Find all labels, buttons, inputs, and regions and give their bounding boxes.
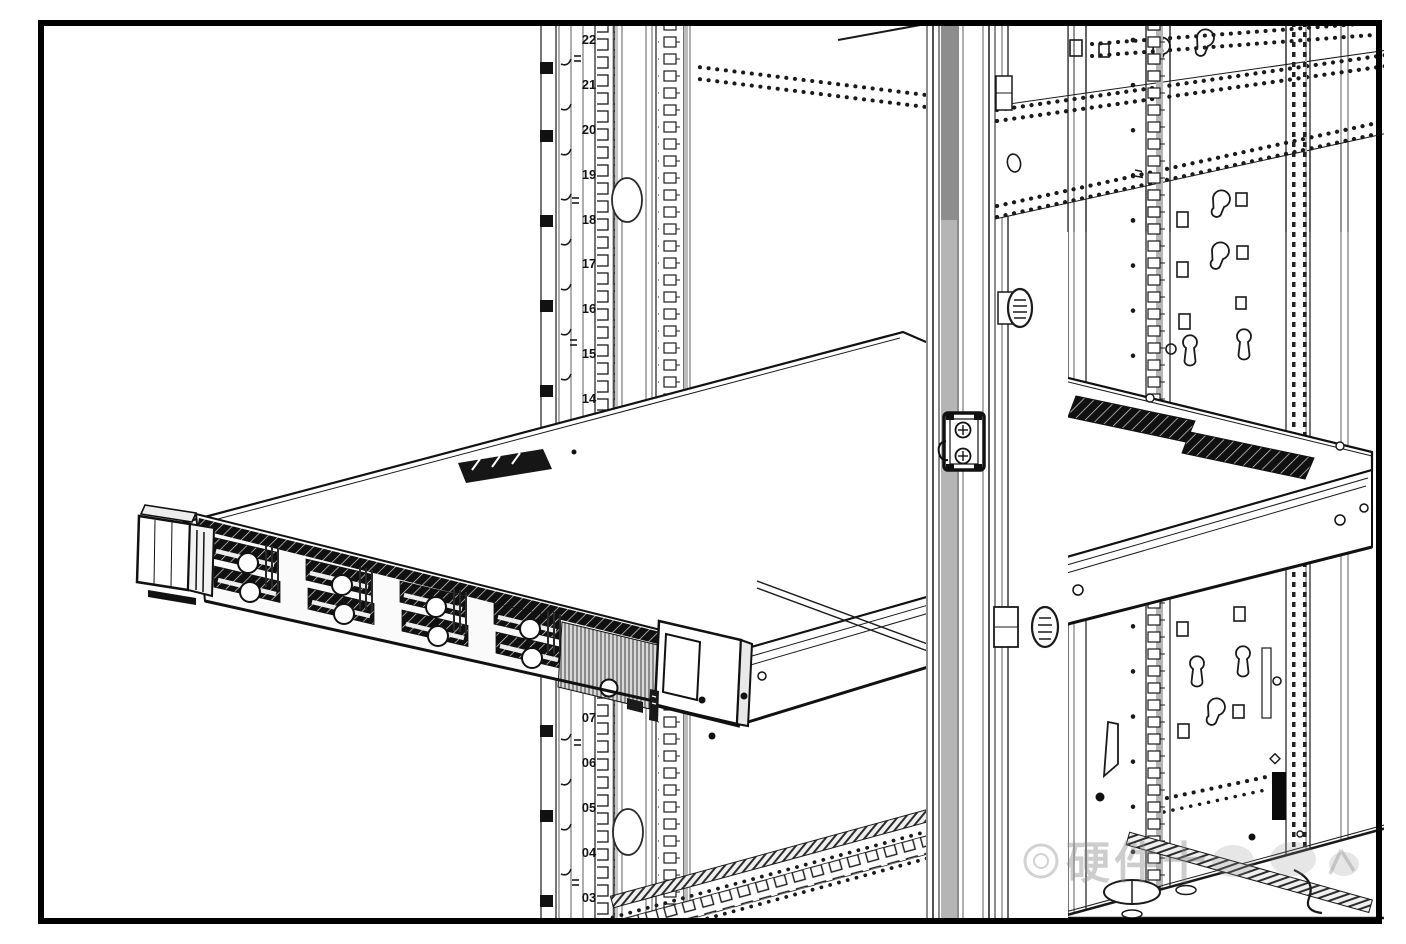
rack-unit-number: 20 xyxy=(582,122,596,137)
square-hole xyxy=(1177,622,1188,636)
side-screw xyxy=(1073,585,1083,595)
side-screw xyxy=(1360,504,1368,512)
rack-unit-number: 21 xyxy=(582,77,596,92)
square-hole xyxy=(1070,40,1082,56)
rack-unit-number: 22 xyxy=(582,32,596,47)
rack-unit-number: 05 xyxy=(582,800,596,815)
round-hole xyxy=(1273,677,1281,685)
watermark-text: 硬件十 xyxy=(1066,839,1210,888)
square-hole xyxy=(1236,193,1247,206)
keyhole-slot xyxy=(1237,329,1251,359)
side-screw xyxy=(758,672,766,680)
square-hole xyxy=(1237,246,1248,259)
rack-installation-illustration: 22 21 20 19 18 17 16 15 14 07 06 05 04 0… xyxy=(0,0,1406,944)
rack-unit-number: 07 xyxy=(582,710,596,725)
ear-handle-window xyxy=(663,634,700,700)
square-hole xyxy=(1178,724,1189,738)
post-oval-hole xyxy=(613,809,643,855)
power-button xyxy=(601,680,618,697)
square-hole xyxy=(1179,314,1190,329)
side-screw xyxy=(1335,515,1345,525)
thumbscrew xyxy=(1008,289,1032,327)
square-hole xyxy=(1236,297,1246,309)
slot-strip xyxy=(1262,648,1271,718)
keyhole-slot xyxy=(1183,335,1197,365)
keyhole-slot xyxy=(1236,646,1250,676)
rack-unit-numbers-upper: 22 21 20 19 18 17 16 15 14 xyxy=(582,32,597,406)
thumbscrew xyxy=(1032,607,1058,647)
rack-unit-number: 17 xyxy=(582,256,596,271)
rack-unit-number: 04 xyxy=(582,845,597,860)
square-hole xyxy=(1177,262,1188,277)
square-hole xyxy=(1233,705,1244,718)
rack-unit-number: 03 xyxy=(582,890,596,905)
rack-unit-number: 15 xyxy=(582,346,596,361)
post-shaded-strip-dark xyxy=(941,20,957,220)
front-badge xyxy=(649,689,659,722)
post-oval-hole xyxy=(612,178,642,222)
cage-nut-latch xyxy=(939,413,984,470)
rail-end-block xyxy=(1272,772,1286,820)
screw-head xyxy=(1096,793,1105,802)
rack-unit-number: 19 xyxy=(582,167,596,182)
illustration-svg: 22 21 20 19 18 17 16 15 14 07 06 05 04 0… xyxy=(0,0,1406,944)
post-shaded-strip-light xyxy=(941,220,957,918)
square-hole xyxy=(1177,212,1188,227)
rack-unit-number: 16 xyxy=(582,301,596,316)
keyhole-slot xyxy=(1190,656,1204,686)
rack-unit-number: 06 xyxy=(582,755,596,770)
rack-unit-number: 18 xyxy=(582,212,596,227)
rack-unit-number: 14 xyxy=(582,391,597,406)
square-hole xyxy=(1234,607,1245,621)
